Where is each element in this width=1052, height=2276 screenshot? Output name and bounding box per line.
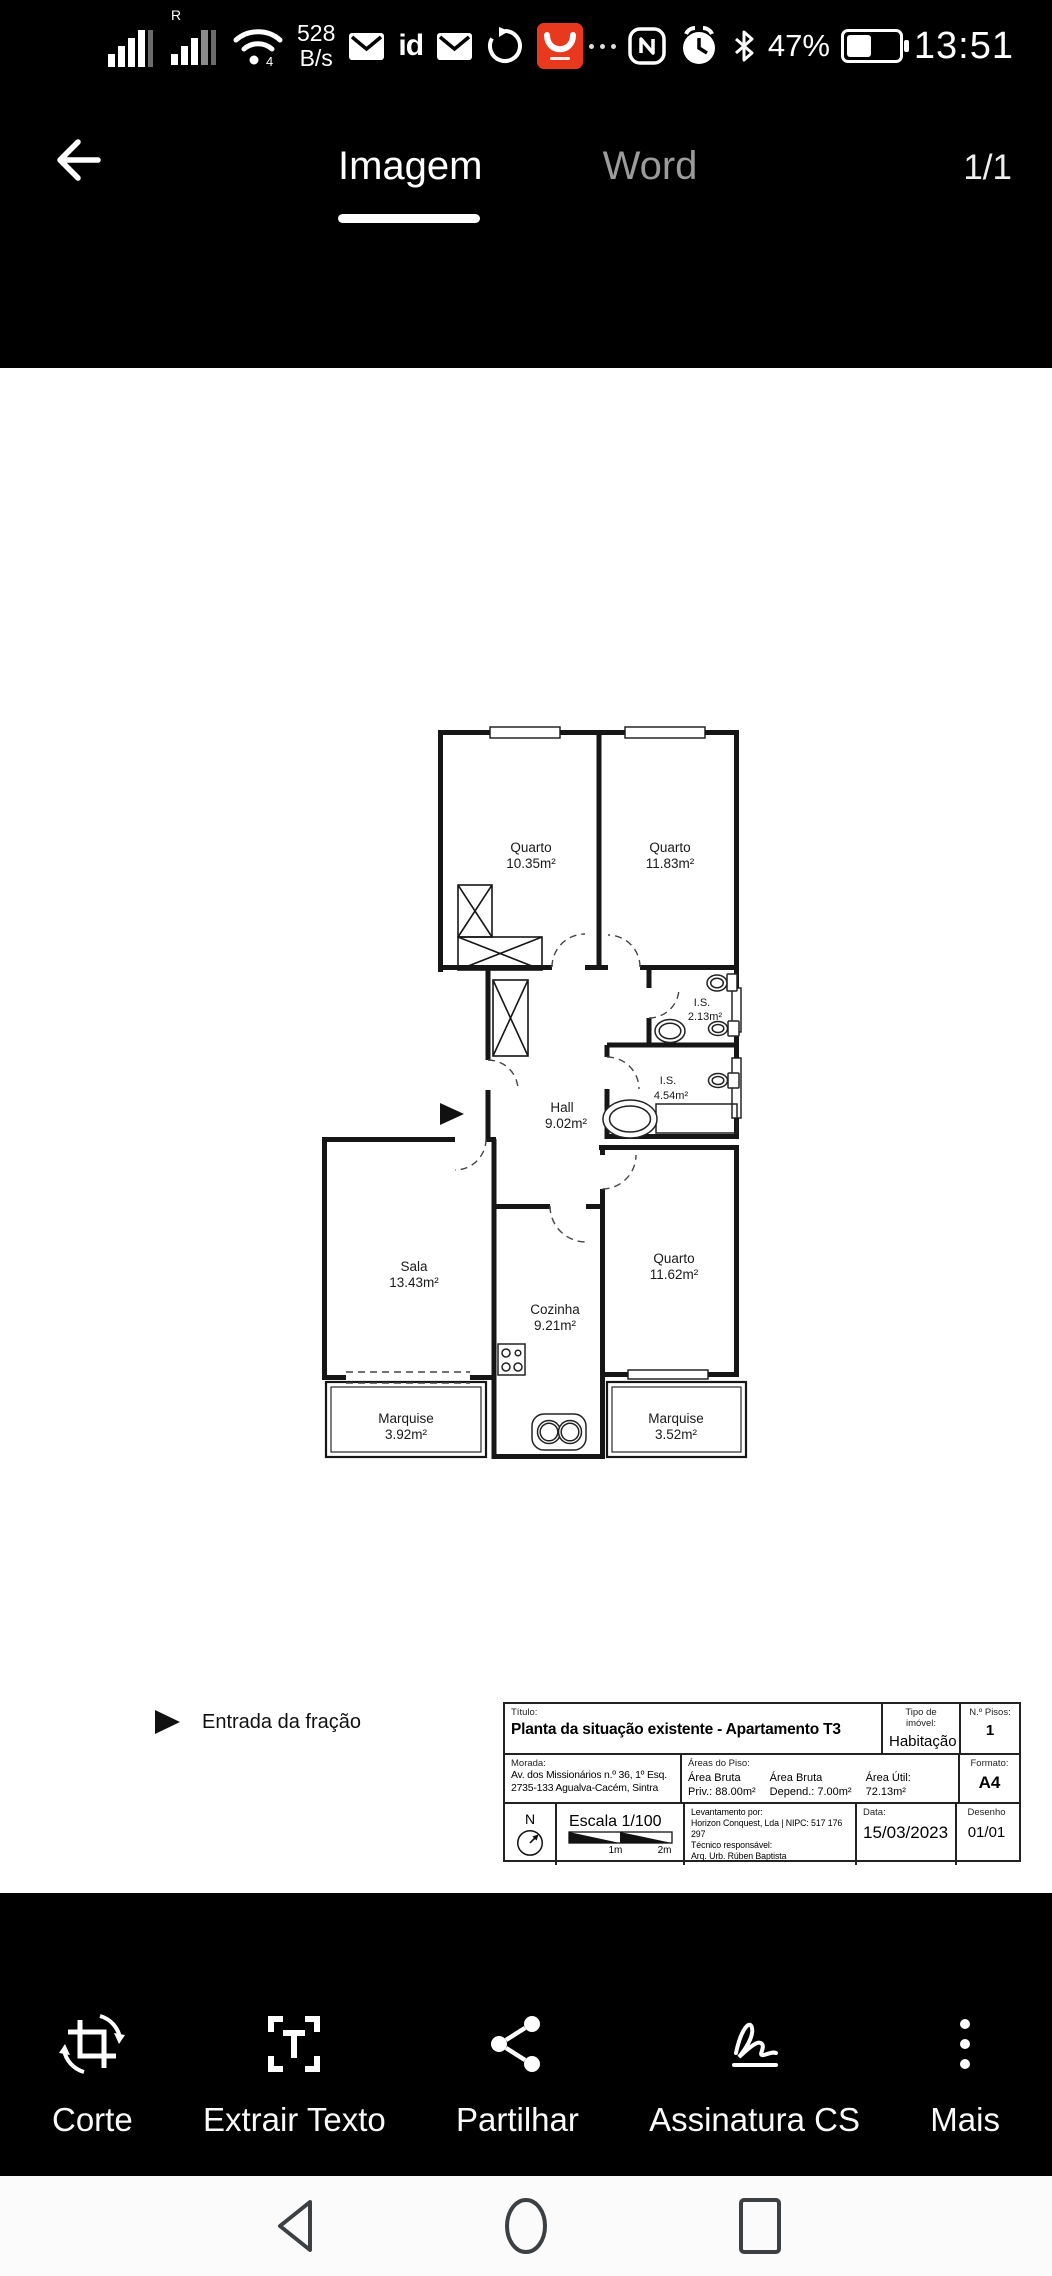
status-bar: R 4 528 B/s id bbox=[0, 0, 1052, 92]
document-page[interactable]: Quarto 10.35m² Quarto 11.83m² I.S. 2.13m… bbox=[0, 368, 1052, 1893]
mail-icon-2 bbox=[436, 32, 473, 61]
svg-text:13.43m²: 13.43m² bbox=[389, 1275, 439, 1290]
status-right-group: 47% 13:51 bbox=[589, 25, 1014, 68]
signature-icon bbox=[722, 2011, 788, 2077]
svg-text:4.54m²: 4.54m² bbox=[654, 1090, 689, 1102]
surveyor-cell: Levantamento por: Horizon Conquest, Lda … bbox=[683, 1804, 855, 1865]
scale-text: Escala 1/100 bbox=[563, 1813, 662, 1831]
extract-text-button[interactable]: Extrair Texto bbox=[203, 2011, 386, 2176]
bluetooth-icon bbox=[731, 29, 757, 63]
title-cell: Título: Planta da situação existente - A… bbox=[505, 1704, 881, 1753]
active-tab-underline bbox=[338, 214, 480, 223]
compass-icon bbox=[514, 1826, 546, 1858]
svg-text:Marquise: Marquise bbox=[378, 1411, 434, 1426]
phone-screen: R 4 528 B/s id bbox=[0, 0, 1052, 2276]
svg-text:11.83m²: 11.83m² bbox=[646, 856, 695, 871]
svg-text:Sala: Sala bbox=[400, 1259, 428, 1274]
tab-imagem[interactable]: Imagem bbox=[338, 144, 480, 189]
property-type-cell: Tipo de imóvel: Habitação bbox=[881, 1704, 959, 1753]
entrance-triangle-icon bbox=[155, 1710, 180, 1734]
date-cell: Data: 15/03/2023 bbox=[855, 1804, 955, 1865]
signature-button[interactable]: Assinatura CS bbox=[649, 2011, 860, 2176]
north-label: N bbox=[525, 1812, 535, 1826]
area-bruta-depend: Área BrutaDepend.: 7.00m² bbox=[770, 1772, 852, 1799]
signal-strength-icon bbox=[106, 23, 156, 69]
nfc-icon bbox=[627, 26, 667, 66]
svg-text:11.62m²: 11.62m² bbox=[650, 1267, 699, 1282]
format-cell: Formato: A4 bbox=[958, 1755, 1019, 1802]
svg-text:3.92m²: 3.92m² bbox=[385, 1427, 428, 1442]
svg-text:9.02m²: 9.02m² bbox=[545, 1116, 588, 1131]
svg-text:Quarto: Quarto bbox=[510, 840, 551, 855]
scale-cell: Escala 1/100 1m2m bbox=[555, 1804, 683, 1865]
floor-plan-drawing: Quarto 10.35m² Quarto 11.83m² I.S. 2.13m… bbox=[318, 722, 762, 1472]
svg-text:I.S.: I.S. bbox=[694, 997, 711, 1009]
bottom-toolbar: Corte Extrair Texto Partilhar Assinatura… bbox=[0, 1893, 1052, 2176]
entrance-label: Entrada da fração bbox=[202, 1711, 361, 1734]
alarm-icon bbox=[678, 25, 720, 67]
svg-text:Quarto: Quarto bbox=[649, 840, 690, 855]
share-button[interactable]: Partilhar bbox=[456, 2011, 579, 2176]
address-cell: Morada: Av. dos Missionários n.º 36, 1º … bbox=[505, 1755, 680, 1802]
svg-text:10.35m²: 10.35m² bbox=[506, 856, 556, 871]
entrance-legend: Entrada da fração bbox=[155, 1710, 361, 1734]
sync-icon bbox=[486, 27, 524, 65]
floors-cell: N.º Pisos: 1 bbox=[959, 1704, 1019, 1753]
crop-button[interactable]: Corte bbox=[52, 2011, 133, 2176]
page-indicator: 1/1 bbox=[963, 148, 1012, 188]
signal-roaming-icon: R bbox=[169, 21, 219, 72]
tab-word[interactable]: Word bbox=[590, 144, 710, 189]
more-button[interactable]: Mais bbox=[930, 2011, 1000, 2176]
crop-rotate-icon bbox=[59, 2011, 125, 2077]
wifi-icon: 4 bbox=[232, 23, 284, 69]
svg-text:2.13m²: 2.13m² bbox=[688, 1011, 723, 1023]
drawing-title: Planta da situação existente - Apartamen… bbox=[511, 1721, 875, 1739]
svg-text:4: 4 bbox=[266, 54, 273, 69]
android-navigation-bar bbox=[0, 2176, 1052, 2276]
roaming-label: R bbox=[171, 7, 181, 23]
battery-icon bbox=[841, 29, 903, 63]
more-vertical-icon bbox=[932, 2011, 998, 2077]
wardrobes bbox=[458, 885, 542, 1056]
svg-text:Quarto: Quarto bbox=[653, 1251, 694, 1266]
network-speed: 528 B/s bbox=[297, 21, 335, 71]
scale-bar bbox=[568, 1831, 673, 1845]
extract-text-icon bbox=[261, 2011, 327, 2077]
area-bruta-priv: Área BrutaPriv.: 88.00m² bbox=[688, 1772, 756, 1799]
svg-text:Marquise: Marquise bbox=[648, 1411, 704, 1426]
app-bar: Imagem Word 1/1 bbox=[0, 92, 1052, 242]
more-notifications-icon bbox=[589, 44, 616, 49]
areas-cell: Áreas do Piso: Área BrutaPriv.: 88.00m² … bbox=[680, 1755, 958, 1802]
nav-back-icon[interactable] bbox=[270, 2196, 318, 2256]
battery-percent: 47% bbox=[768, 28, 830, 64]
svg-text:Hall: Hall bbox=[550, 1100, 573, 1115]
title-block: Título: Planta da situação existente - A… bbox=[503, 1702, 1021, 1862]
svg-text:I.S.: I.S. bbox=[660, 1075, 677, 1087]
nav-recents-icon[interactable] bbox=[736, 2196, 784, 2256]
area-util: Área Útil:72.13m² bbox=[866, 1772, 911, 1799]
svg-text:3.52m²: 3.52m² bbox=[655, 1427, 698, 1442]
clock: 13:51 bbox=[914, 25, 1014, 68]
id-app-icon: id bbox=[398, 29, 423, 63]
sheet-cell: Desenho 01/01 bbox=[955, 1804, 1016, 1865]
status-left-group: R 4 528 B/s id bbox=[106, 21, 583, 72]
back-arrow-icon[interactable] bbox=[50, 132, 106, 188]
svg-text:9.21m²: 9.21m² bbox=[534, 1318, 577, 1333]
north-compass-cell: N bbox=[505, 1804, 555, 1865]
entrance-arrow bbox=[440, 1103, 464, 1125]
share-icon bbox=[484, 2011, 550, 2077]
svg-text:Cozinha: Cozinha bbox=[530, 1302, 580, 1317]
door-swings bbox=[346, 934, 679, 1383]
mail-icon bbox=[348, 32, 385, 61]
aliexpress-icon bbox=[537, 23, 583, 69]
nav-home-icon[interactable] bbox=[502, 2196, 550, 2256]
